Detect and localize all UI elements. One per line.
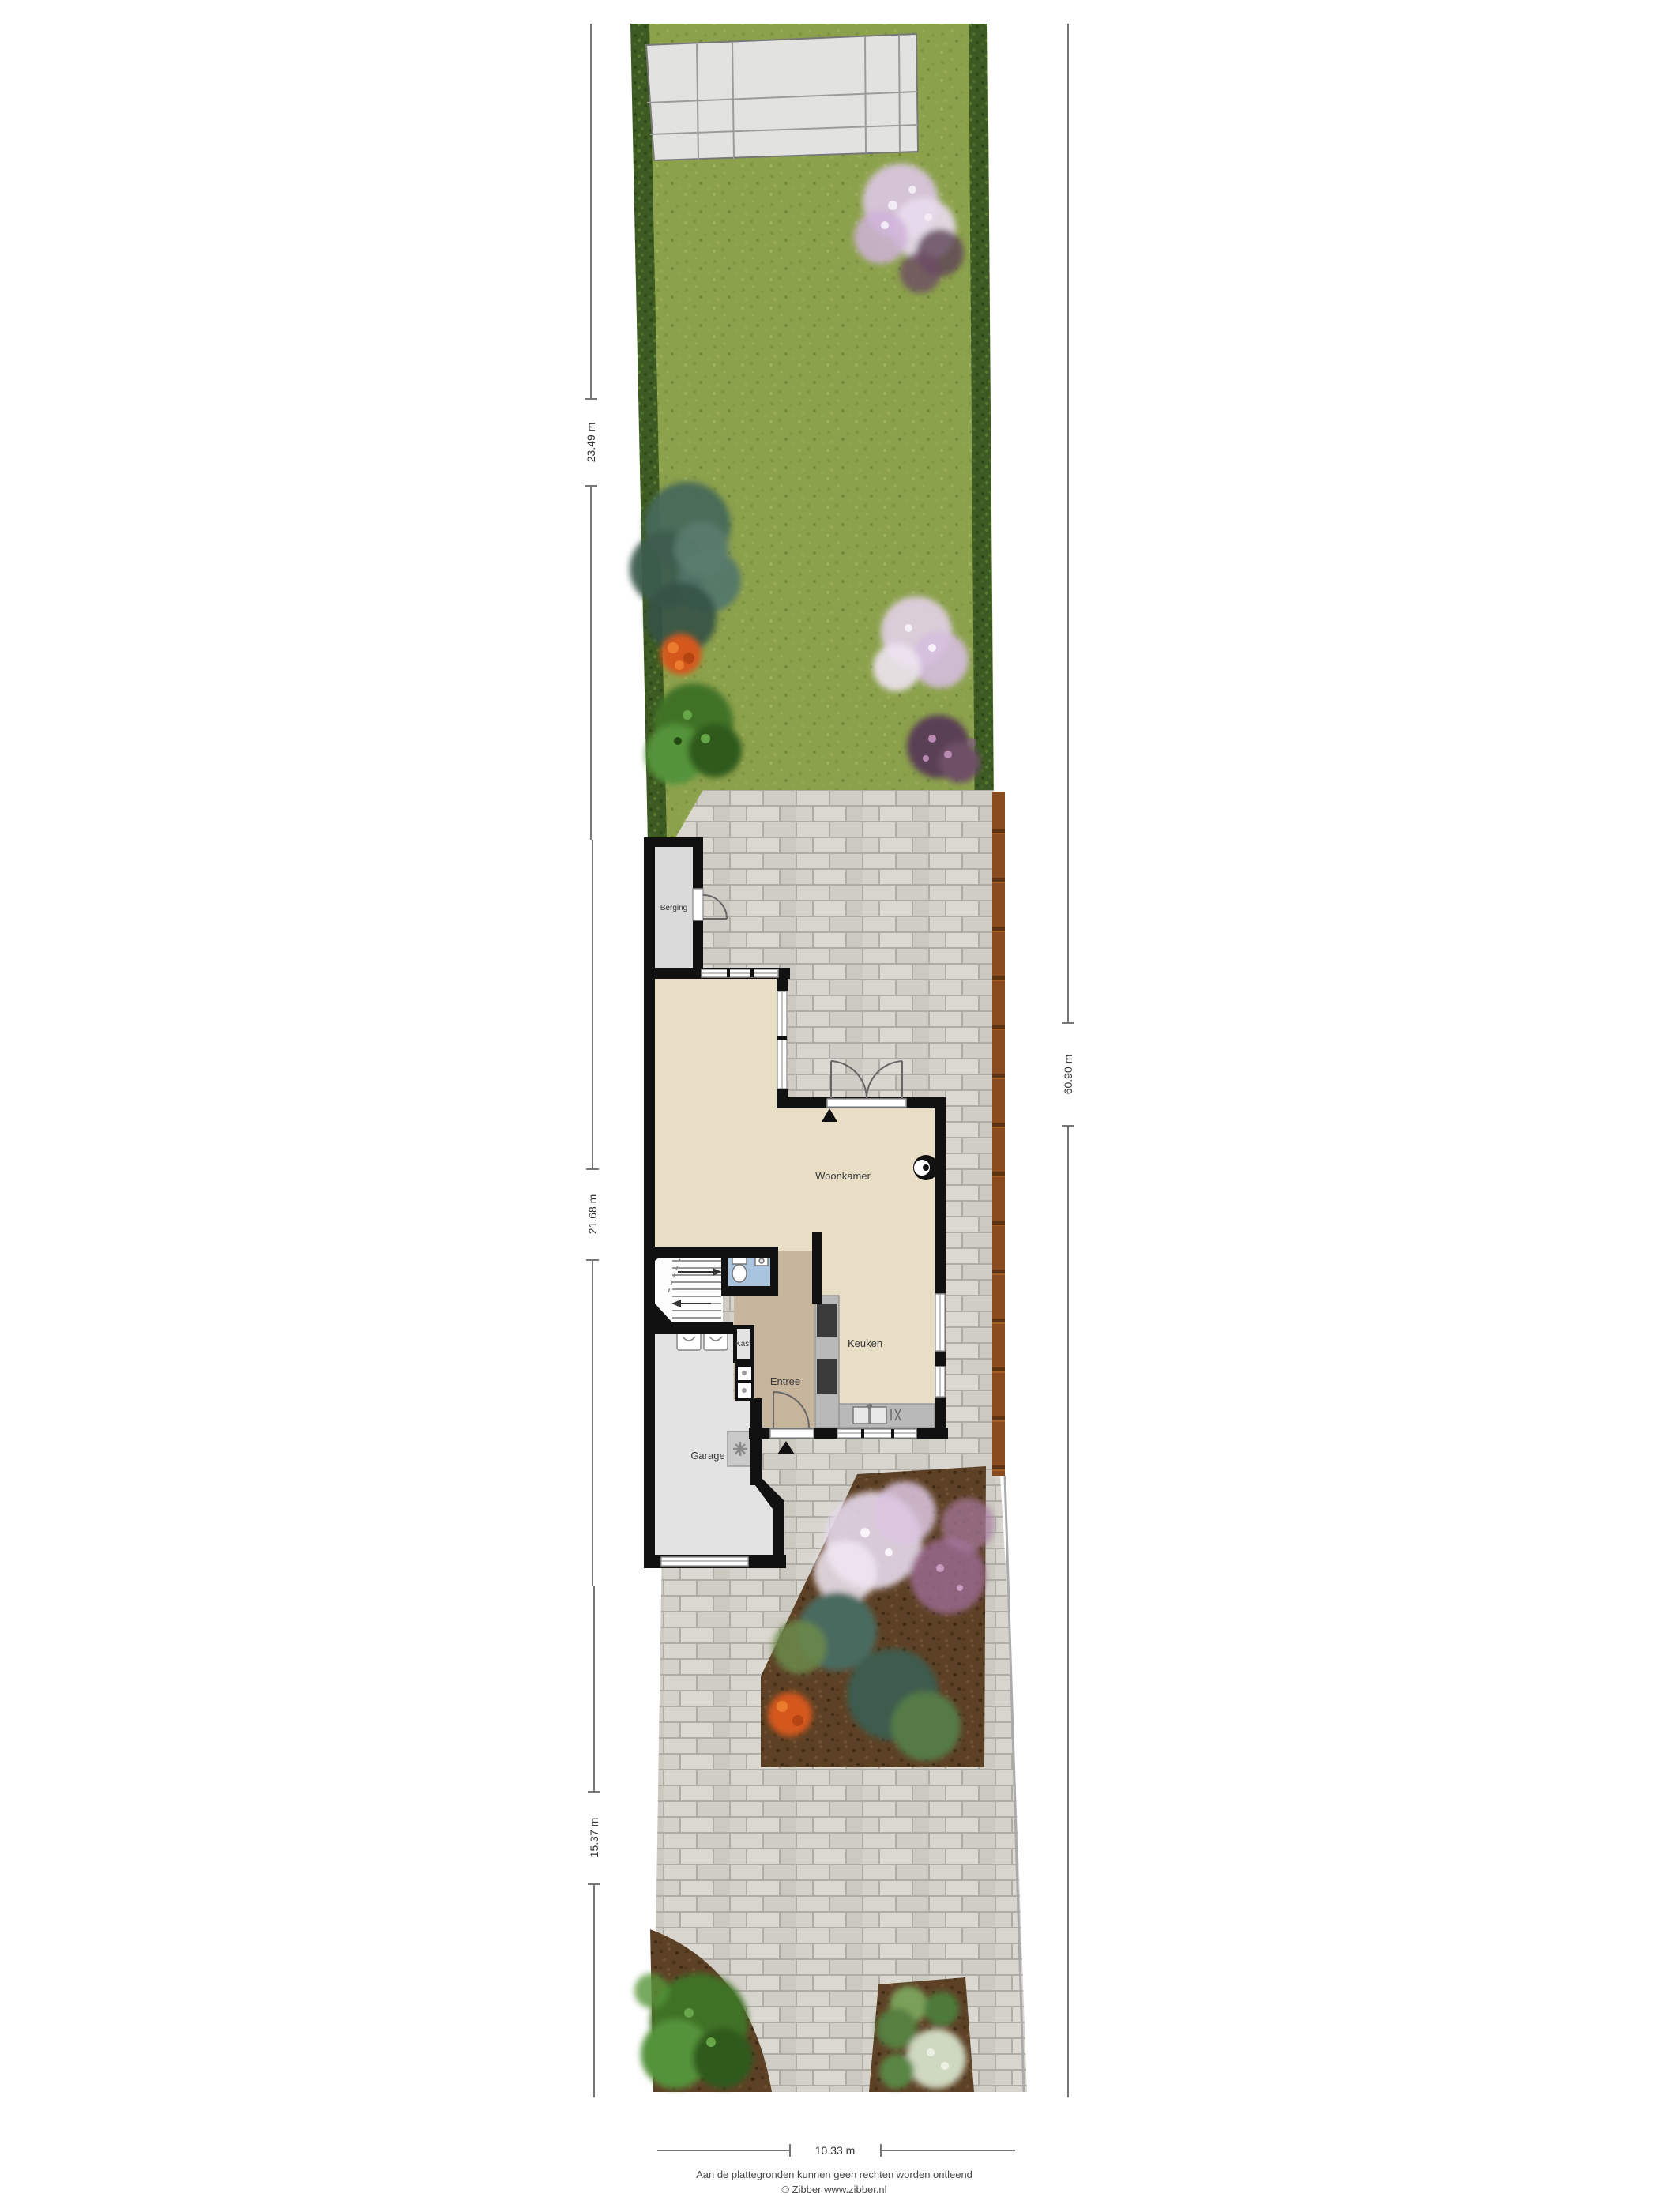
fridge-icon xyxy=(817,1359,837,1394)
dim-plot-width: 10.33 m xyxy=(657,2144,1015,2157)
garage-door xyxy=(661,1557,748,1566)
living-side-window xyxy=(777,991,787,1089)
room-label-kast: Kast xyxy=(735,1340,751,1349)
dim-total-depth: 60.90 m xyxy=(1062,24,1074,2097)
footer-disclaimer: Aan de plattegronden kunnen geen rechten… xyxy=(696,2169,972,2180)
room-label-keuken: Keuken xyxy=(848,1337,882,1349)
footer: Aan de plattegronden kunnen geen rechten… xyxy=(696,2169,972,2195)
meter-shaft xyxy=(735,1363,754,1401)
footer-credit: © Zibber www.zibber.nl xyxy=(781,2184,886,2195)
dim-label-garden-depth: 23.49 m xyxy=(585,423,597,463)
garden xyxy=(630,24,994,842)
room-label-entree: Entree xyxy=(770,1375,800,1387)
oven-icon xyxy=(817,1303,837,1337)
dim-label-plot-width: 10.33 m xyxy=(815,2144,856,2157)
dim-label-house-depth: 21.68 m xyxy=(586,1194,599,1235)
kitchen-bottom-window xyxy=(837,1429,916,1438)
patio-slabs xyxy=(646,34,918,160)
room-label-garage: Garage xyxy=(690,1450,724,1461)
orange-flowers-garden xyxy=(660,634,702,675)
living-top-window xyxy=(702,969,778,977)
orange-flowers-bed xyxy=(768,1692,812,1736)
kitchen-side-window-2 xyxy=(935,1367,945,1397)
dim-house-depth: 21.68 m xyxy=(586,840,599,1586)
flower-bed-right xyxy=(869,1977,974,2092)
dim-garden-depth: 23.49 m xyxy=(585,24,597,840)
wood-fence xyxy=(992,792,1005,1476)
dim-front-depth: 15.37 m xyxy=(588,1586,600,2097)
floorplan-page: Berging Woonkamer Keuken Entree Kast Gar… xyxy=(0,0,1659,2212)
dim-label-total-depth: 60.90 m xyxy=(1062,1055,1074,1095)
site-plan-canvas: Berging Woonkamer Keuken Entree Kast Gar… xyxy=(0,0,1659,2212)
dim-label-front-depth: 15.37 m xyxy=(588,1818,600,1858)
kitchen-side-window-1 xyxy=(935,1294,945,1351)
room-label-berging: Berging xyxy=(660,904,687,912)
stairs-floor xyxy=(653,1255,723,1322)
room-label-woonkamer: Woonkamer xyxy=(815,1170,871,1182)
